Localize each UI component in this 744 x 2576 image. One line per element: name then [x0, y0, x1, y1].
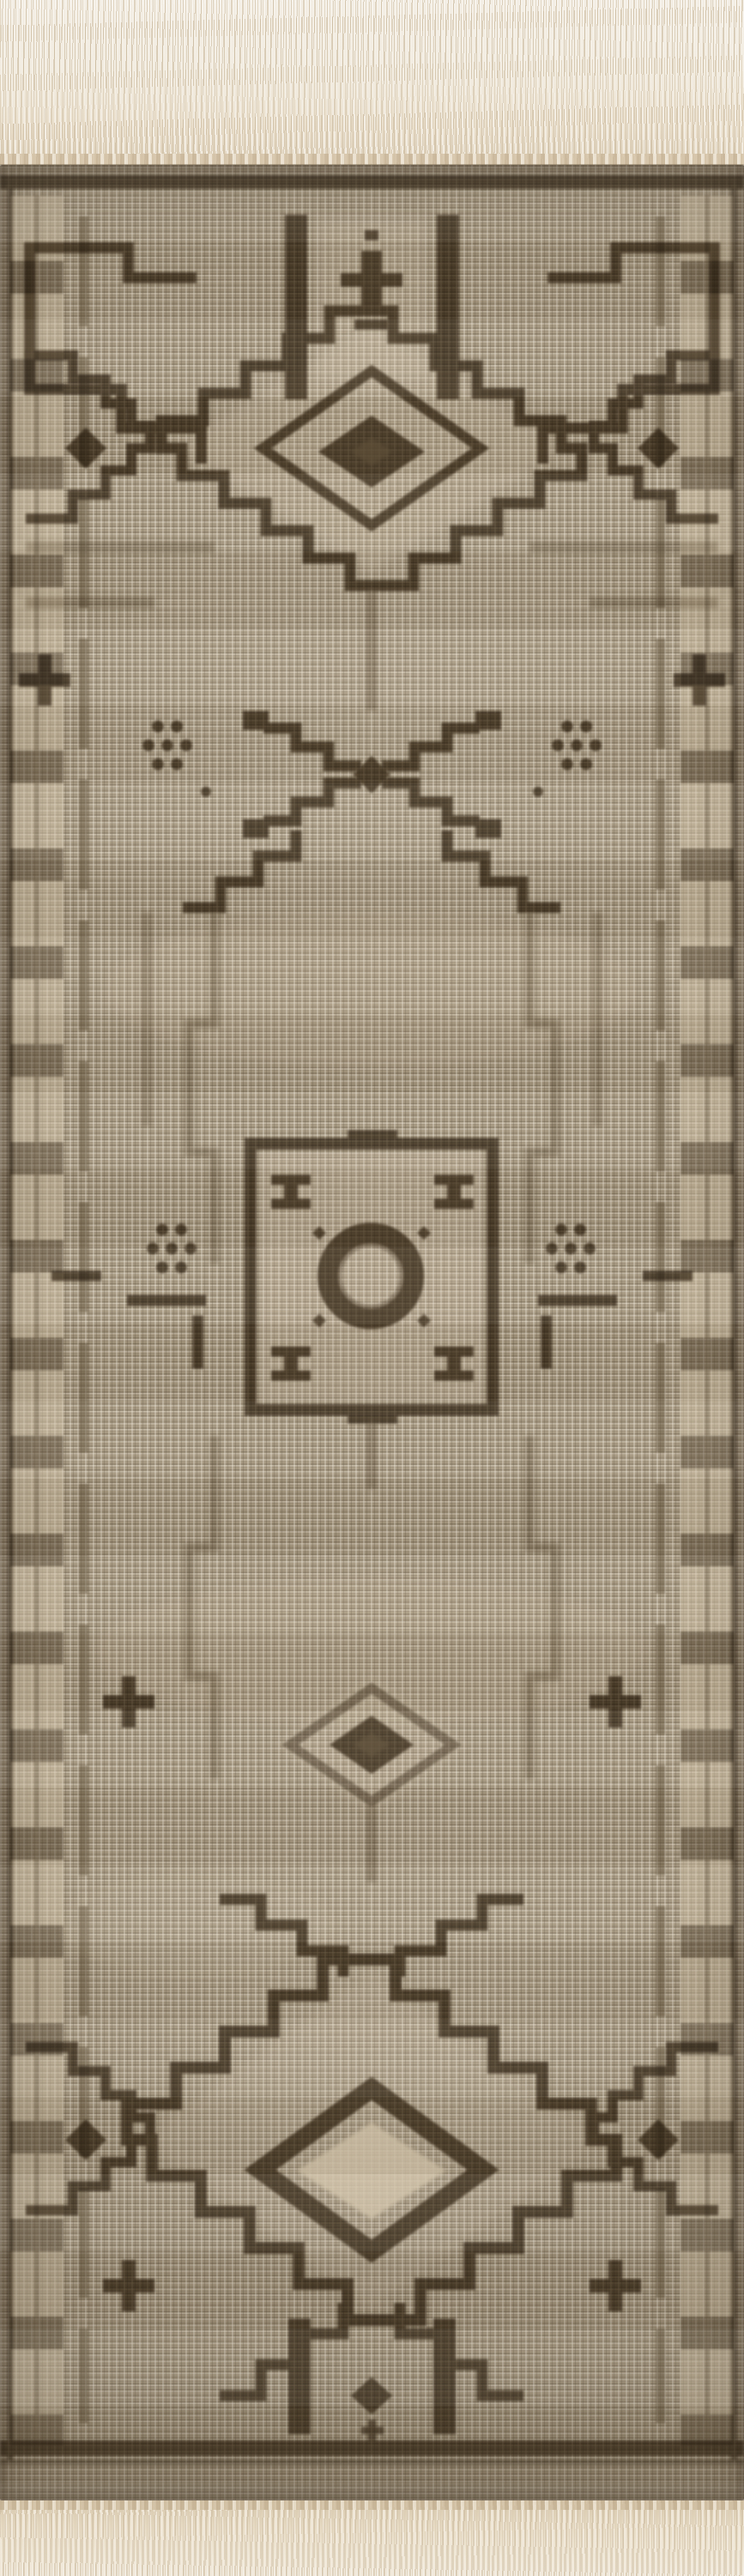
fringe-bottom [0, 2500, 744, 2576]
fringe-top [0, 0, 744, 165]
rug-body [0, 165, 744, 2500]
rug-pattern [0, 165, 744, 2500]
rug-photo: Overhead photograph of a hand-knotted wo… [0, 0, 744, 2576]
